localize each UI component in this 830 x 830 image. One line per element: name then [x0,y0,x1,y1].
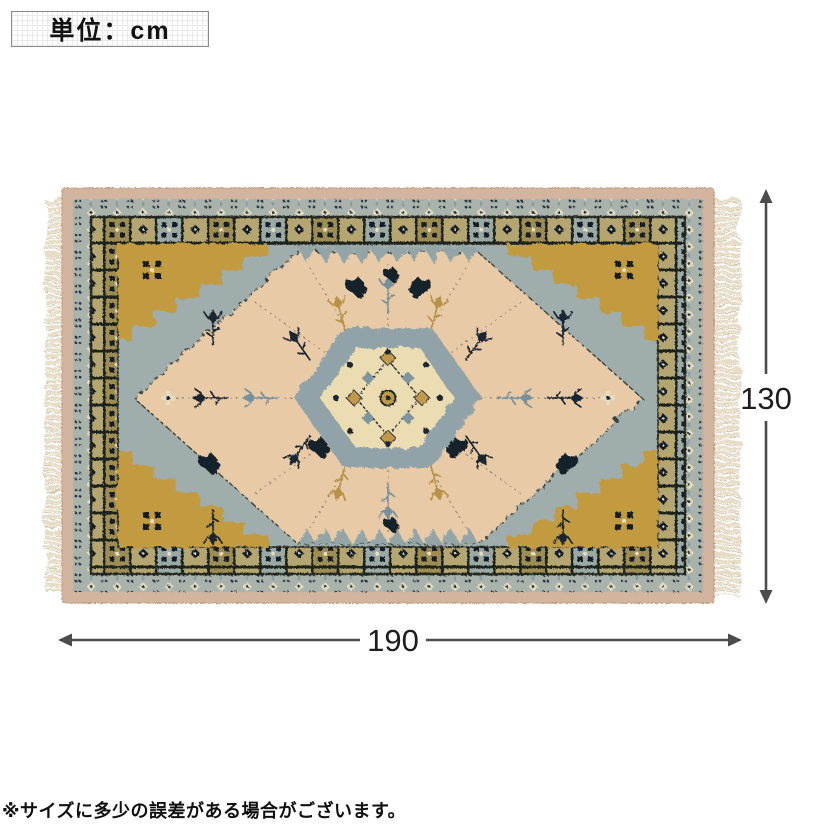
width-value: 190 [367,623,419,658]
size-tolerance-note: ※サイズに多少の誤差がある場合がございます。 [2,797,406,823]
width-dimension: 190 [58,623,742,658]
height-arrowhead-top [760,189,773,203]
width-arrowhead-left [58,634,72,647]
rug-photo [45,188,740,603]
width-arrowhead-right [728,634,742,647]
height-value: 130 [740,381,792,416]
height-dimension: 130 [740,189,792,604]
rug-dimension-diagram: 130 190 [0,0,830,830]
product-dimension-figure: 単位：cm [0,0,830,830]
height-arrowhead-bottom [760,590,773,604]
